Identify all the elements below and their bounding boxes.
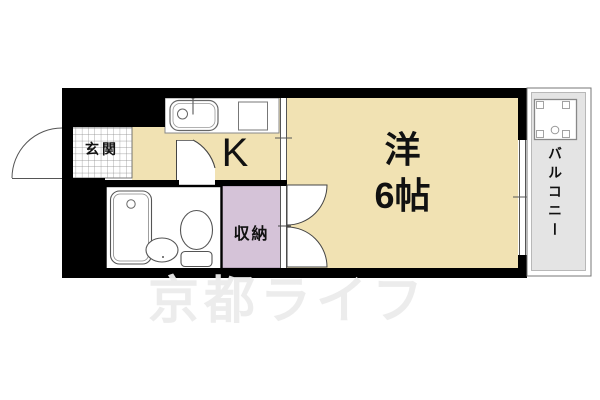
watermark: 京都ライフ [148,272,428,329]
washbasin-icon [146,238,178,262]
kitchen-sink-icon [170,95,218,130]
washing-machine-pan-icon [535,100,577,140]
bathroom-unit [106,186,222,270]
kitchen-counter [165,95,279,133]
kitchen-label: K [210,131,260,176]
stove-icon [239,102,268,130]
storage-label: 収納 [222,220,281,244]
entrance-label: 玄関 [72,139,132,159]
western-room-label: 洋 6帖 [287,127,518,219]
balcony-label: バルコニー [545,146,565,258]
floor-plan: 京都ライフ 玄関 K 洋 6帖 収納 バルコニー [0,0,600,400]
bathtub-icon [111,191,152,264]
western-room-type: 洋 [287,127,518,173]
toilet-icon [181,211,213,267]
western-room-size: 6帖 [287,173,518,219]
